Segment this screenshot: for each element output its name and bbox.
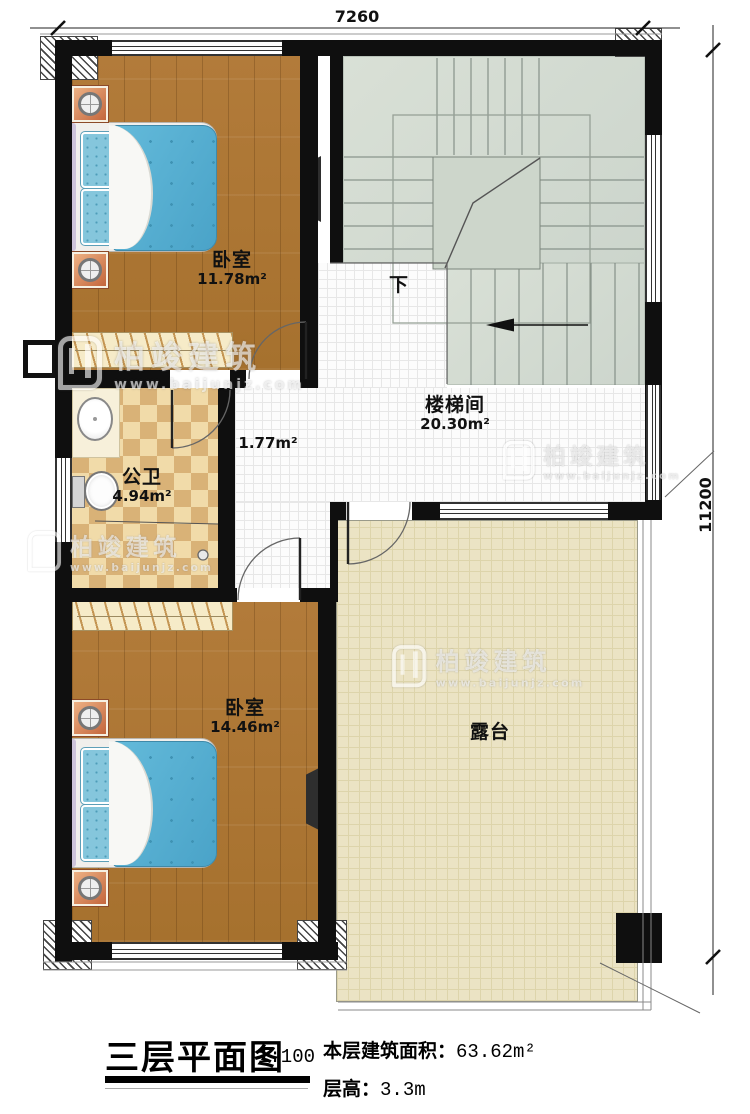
room-name: 楼梯间 xyxy=(385,394,525,416)
dimension-top-label: 7260 xyxy=(307,7,407,26)
floor-area-label: 本层建筑面积： xyxy=(323,1040,456,1062)
dimension-right-label: 11200 xyxy=(696,475,716,535)
room-name: 公卫 xyxy=(87,466,197,488)
floor-area-value: 63.62m² xyxy=(456,1041,536,1063)
room-area: 20.30m² xyxy=(385,416,525,434)
floor-area-line: 本层建筑面积：63.62m² xyxy=(323,1036,536,1063)
room-label-bedroom-1: 卧室 11.78m² xyxy=(162,249,302,289)
room-label-bathroom: 公卫 4.94m² xyxy=(87,466,197,506)
floor-height-line: 层高：3.3m xyxy=(323,1074,426,1101)
drawing-scale: 1:100 xyxy=(258,1046,315,1068)
room-label-hallway: 1.77m² xyxy=(213,435,323,453)
title-underline-thick xyxy=(105,1076,310,1083)
room-name: 卧室 xyxy=(162,249,302,271)
room-label-bedroom-2: 卧室 14.46m² xyxy=(175,697,315,737)
stairs-down-label: 下 xyxy=(386,274,412,296)
shower-drain xyxy=(198,550,208,560)
door-arcs xyxy=(172,322,410,600)
floor-height-value: 3.3m xyxy=(380,1079,426,1101)
door-leaves xyxy=(172,322,348,600)
room-name: 卧室 xyxy=(175,697,315,719)
down-arrow-icon xyxy=(486,319,514,332)
room-area: 4.94m² xyxy=(87,488,197,506)
room-label-stairwell: 楼梯间 20.30m² xyxy=(385,394,525,434)
shower-partition xyxy=(95,521,218,524)
floor-height-label: 层高： xyxy=(323,1078,380,1100)
terrace-railing xyxy=(338,520,651,1010)
stair-landing xyxy=(433,157,540,269)
title-underline-thin xyxy=(105,1088,308,1089)
dimension-lines xyxy=(30,25,714,1013)
room-area: 14.46m² xyxy=(175,719,315,737)
floor-plan-page: 卧室 11.78m² 楼梯间 20.30m² 1.77m² 公卫 4.94m² … xyxy=(0,0,750,1114)
plan-linework xyxy=(0,0,750,1114)
room-label-terrace: 露台 xyxy=(430,721,550,743)
room-area: 11.78m² xyxy=(162,271,302,289)
